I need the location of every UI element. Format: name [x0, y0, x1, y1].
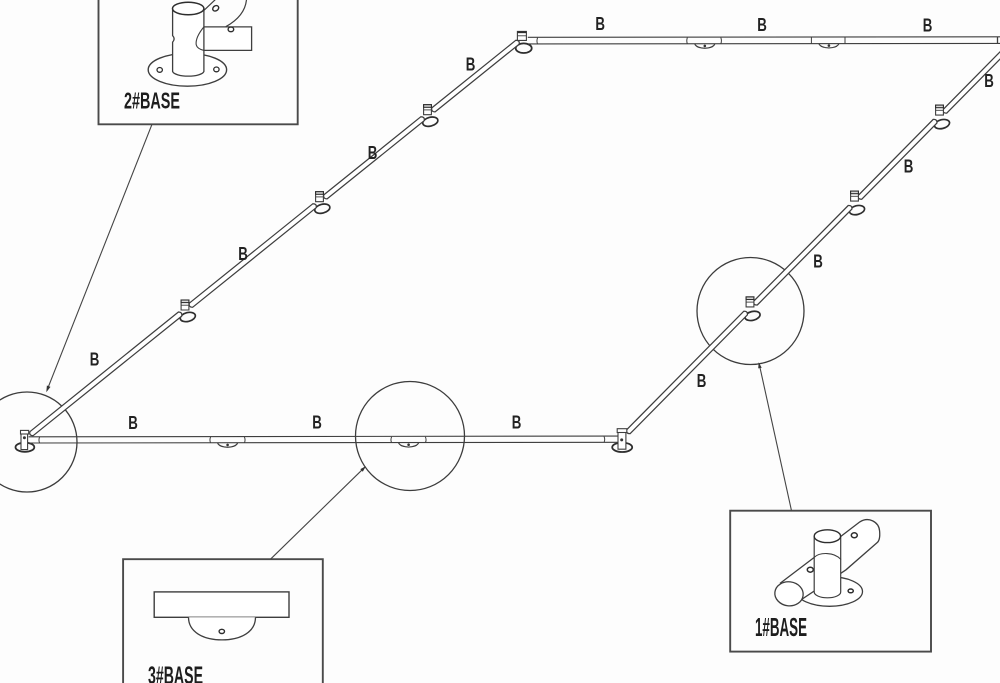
- svg-text:2#BASE: 2#BASE: [124, 88, 180, 114]
- svg-text:B: B: [813, 251, 823, 272]
- svg-text:B: B: [595, 13, 605, 34]
- svg-text:B: B: [368, 142, 378, 163]
- svg-text:B: B: [90, 349, 100, 370]
- svg-text:B: B: [923, 15, 933, 36]
- svg-text:B: B: [312, 412, 322, 433]
- svg-text:B: B: [128, 412, 138, 433]
- svg-text:3#BASE: 3#BASE: [148, 662, 203, 683]
- svg-text:B: B: [512, 412, 522, 433]
- svg-text:B: B: [757, 14, 767, 35]
- svg-text:B: B: [238, 243, 248, 264]
- svg-text:B: B: [904, 156, 914, 177]
- svg-text:B: B: [697, 370, 707, 391]
- svg-text:B: B: [984, 70, 994, 91]
- svg-text:1#BASE: 1#BASE: [755, 612, 807, 642]
- svg-text:B: B: [466, 54, 476, 75]
